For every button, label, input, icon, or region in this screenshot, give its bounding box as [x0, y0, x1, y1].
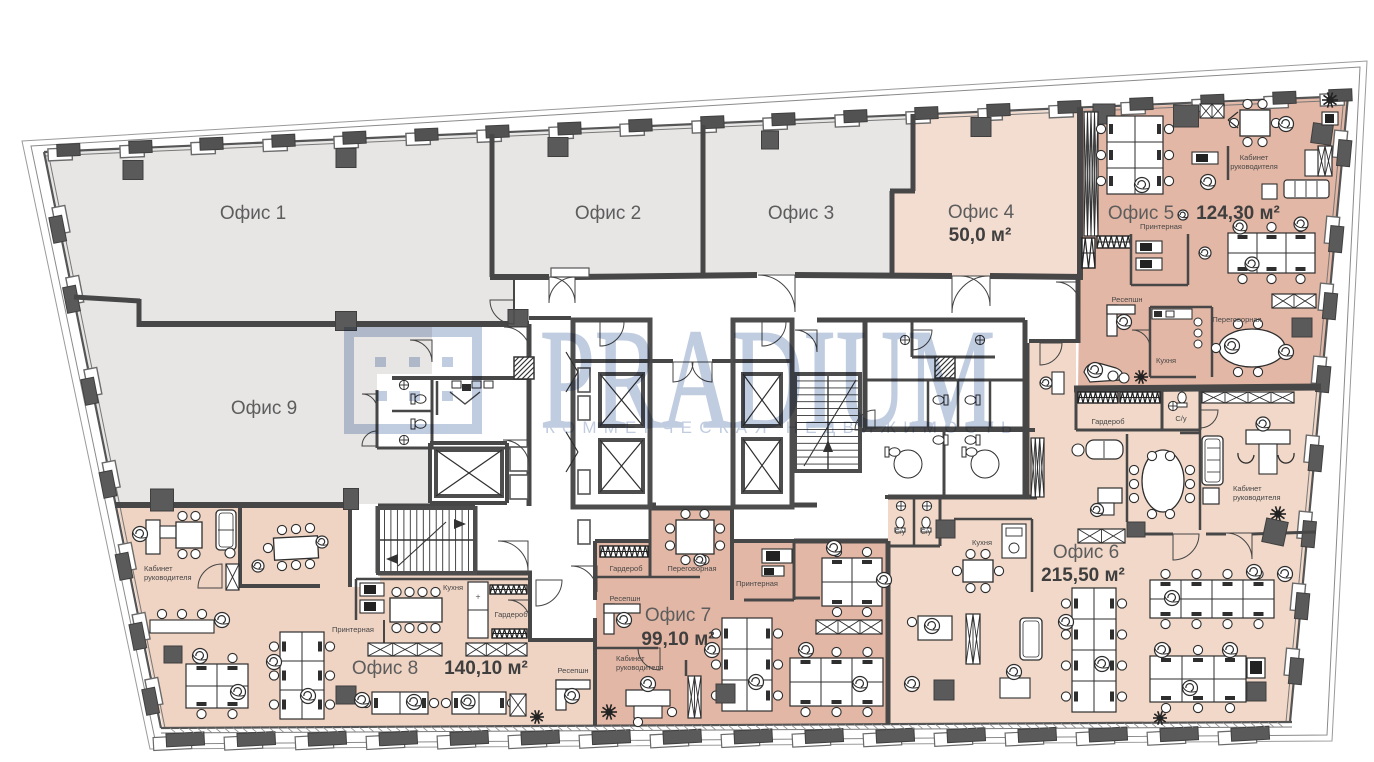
- svg-text:215,50 м²: 215,50 м²: [1041, 565, 1125, 586]
- svg-text:С/у: С/у: [921, 529, 932, 536]
- svg-text:Офис 9: Офис 9: [231, 398, 297, 419]
- svg-text:Кабинет: Кабинет: [616, 654, 645, 663]
- svg-text:140,10 м²: 140,10 м²: [444, 658, 528, 679]
- svg-text:Кабинет: Кабинет: [1233, 484, 1262, 493]
- svg-text:КОММЕРЧЕСКАЯ НЕДВИЖИМОСТЬ: КОММЕРЧЕСКАЯ НЕДВИЖИМОСТЬ: [545, 418, 1019, 437]
- svg-text:С/у: С/у: [1175, 414, 1187, 423]
- svg-text:Кабинет: Кабинет: [1240, 153, 1269, 162]
- svg-text:Переговорная: Переговорная: [1212, 315, 1261, 324]
- svg-text:Офис 8: Офис 8: [352, 658, 418, 679]
- svg-text:С/у: С/у: [895, 529, 906, 536]
- svg-text:Ресепшн: Ресепшн: [1112, 295, 1143, 304]
- svg-text:руководителя: руководителя: [1230, 162, 1278, 171]
- svg-text:Офис 4: Офис 4: [948, 202, 1015, 223]
- svg-text:Ресепшн: Ресепшн: [558, 666, 589, 675]
- svg-text:Офис 6: Офис 6: [1053, 542, 1119, 563]
- svg-text:Кабинет: Кабинет: [144, 564, 173, 573]
- svg-text:Кухня: Кухня: [443, 583, 463, 592]
- svg-text:Офис 5: Офис 5: [1108, 203, 1174, 224]
- svg-text:Переговорная: Переговорная: [667, 564, 716, 573]
- svg-text:Принтерная: Принтерная: [1140, 222, 1182, 231]
- svg-text:Ресепшн: Ресепшн: [610, 594, 641, 603]
- svg-text:руководителя: руководителя: [144, 573, 192, 582]
- svg-text:99,10 м²: 99,10 м²: [641, 629, 714, 650]
- svg-text:50,0 м²: 50,0 м²: [949, 225, 1012, 246]
- svg-text:Офис 3: Офис 3: [768, 203, 834, 224]
- svg-text:руководителя: руководителя: [616, 663, 664, 672]
- svg-text:124,30 м²: 124,30 м²: [1196, 203, 1280, 224]
- svg-text:+: +: [475, 592, 480, 602]
- svg-text:Принтерная: Принтерная: [736, 579, 778, 588]
- svg-text:Гардероб: Гардероб: [610, 564, 643, 573]
- svg-text:Кухня: Кухня: [1156, 356, 1176, 365]
- svg-text:Гардероб: Гардероб: [1092, 417, 1125, 426]
- svg-text:Офис 1: Офис 1: [220, 203, 286, 224]
- svg-text:руководителя: руководителя: [1233, 493, 1281, 502]
- svg-text:Принтерная: Принтерная: [332, 625, 374, 634]
- svg-text:Кухня: Кухня: [972, 538, 992, 547]
- svg-text:Офис 7: Офис 7: [645, 605, 711, 626]
- svg-text:Гардероб: Гардероб: [495, 610, 528, 619]
- svg-text:Офис 2: Офис 2: [575, 203, 641, 224]
